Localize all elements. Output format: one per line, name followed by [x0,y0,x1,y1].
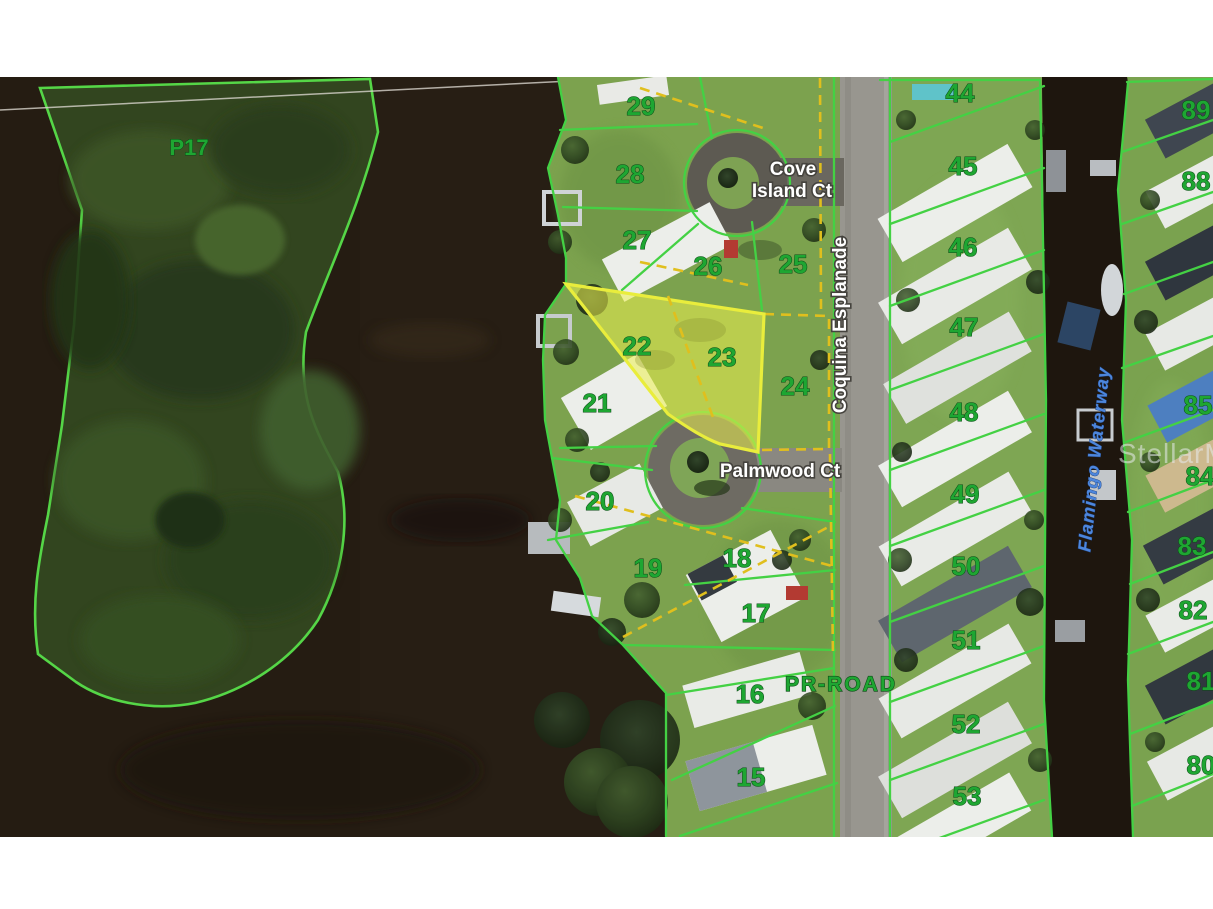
lot-label: 16 [736,679,765,709]
lot-label: 83 [1178,531,1207,561]
lot-label: 45 [949,151,978,181]
lot-label: 52 [952,709,981,739]
lot-label: 80 [1187,750,1213,780]
lot-label: 21 [583,388,612,418]
dock [1090,160,1116,176]
lot-label: 88 [1182,166,1211,196]
lot-label: 47 [950,312,979,342]
lot-label: 25 [779,249,808,279]
street-label-pr-road: PR-ROAD [785,673,897,696]
street-label-cove-island-ct-line1: Cove [770,159,816,180]
lot-label: 26 [694,251,723,281]
lot-label: 29 [627,91,656,121]
lot-label: 15 [737,762,766,792]
lot-label: 24 [781,371,810,401]
red-car [724,240,738,258]
dock [1046,150,1066,192]
lot-label-highlight: 22 [623,331,652,361]
preserve-label: P17 [169,135,208,160]
listing-map-page: P17 [0,0,1213,909]
lot-label: 51 [952,625,981,655]
boat [1101,264,1123,316]
lot-label: 53 [953,781,982,811]
lot-label: 81 [1187,666,1213,696]
lot-label: 48 [950,397,979,427]
lot-label: 49 [951,479,980,509]
lot-label: 17 [742,598,771,628]
lot-label: 19 [634,553,663,583]
aerial-parcel-map: P17 [0,0,1213,909]
lot-label: 50 [952,551,981,581]
lot-label: 28 [616,159,645,189]
lot-label: 27 [623,225,652,255]
lot-label: 20 [586,486,615,516]
street-label-cove-island-ct-line2: Island Ct [752,181,833,202]
lot-label: 46 [949,232,978,262]
lot-label: 85 [1184,390,1213,420]
lot-label: 18 [723,543,752,573]
dock [1055,620,1085,642]
lot-label: 82 [1179,595,1208,625]
street-label-coquina-esplanade: Coquina Esplanade [830,237,851,413]
stellar-mls-watermark: StellarMLS [1118,438,1213,469]
lot-label-highlight: 23 [708,342,737,372]
red-car [786,586,808,600]
lot-label: 89 [1182,95,1211,125]
street-label-palmwood-ct: Palmwood Ct [720,461,841,482]
lot-label: 44 [946,78,975,108]
